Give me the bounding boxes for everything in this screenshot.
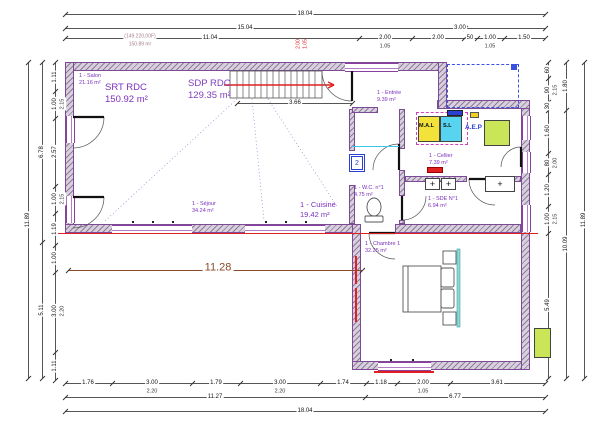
porch-dashed-outline xyxy=(447,64,519,108)
dimension-line xyxy=(42,62,43,378)
dim-label: 6.77 xyxy=(448,394,462,400)
dim-label: 1.00 xyxy=(52,192,58,206)
window-dot xyxy=(152,221,154,223)
dimension-tick xyxy=(543,36,549,42)
dim-label: 3.00 xyxy=(52,304,58,318)
dim-label: 11.28 xyxy=(203,263,234,274)
room-label-entree: 1 - Entrée 9.39 m² xyxy=(377,90,401,104)
dim-label: 5.11 xyxy=(39,303,45,316)
room-label-chambre: 1 - Chambre 1 32.25 m² xyxy=(365,241,400,255)
dim-label: 1.74 xyxy=(336,380,350,386)
dim-label: 6.78 xyxy=(39,145,45,159)
srt-value: 150.92 m² xyxy=(105,94,148,106)
room-label-wc: 1 - W.C. n°1 4.75 m² xyxy=(354,185,384,199)
room-label-cellier: 1 - Cellier 7.39 m² xyxy=(429,153,453,167)
srt-area-summary: SRT RDC 150.92 m² xyxy=(105,82,148,106)
wall xyxy=(438,62,447,109)
plumbing-line xyxy=(352,146,399,147)
dim-label: 2.00 xyxy=(297,38,302,50)
dimension-tick xyxy=(582,376,588,382)
dim-label: 150.89 m² xyxy=(128,43,153,48)
dim-label: 90 xyxy=(545,86,551,95)
dim-label: 2.00 xyxy=(553,157,559,170)
window-opening xyxy=(522,152,531,173)
dimension-tick xyxy=(40,376,46,382)
window-marker-red xyxy=(374,371,434,373)
dim-label: 2.20 xyxy=(274,389,287,395)
dim-label: 1.11 xyxy=(52,70,58,83)
plus-icon: + xyxy=(446,179,451,189)
dim-label: 1.05 xyxy=(304,38,309,50)
sink-unit: + xyxy=(441,178,456,190)
level-marker[interactable]: 2 xyxy=(351,156,363,170)
dryer-label: S.L xyxy=(443,123,452,129)
dimension-tick xyxy=(543,12,549,18)
dim-label: 11.27 xyxy=(207,394,224,400)
window-dot xyxy=(412,359,414,361)
dim-label: 2.15 xyxy=(60,98,66,111)
dim-label: 1.50 xyxy=(517,35,531,41)
window-opening xyxy=(345,63,398,72)
dim-label: 1.00 xyxy=(52,97,58,111)
dim-label: 15.04 xyxy=(236,25,253,31)
dimension-tick xyxy=(543,395,549,401)
dryer-box xyxy=(440,116,462,142)
dim-label: 2.15 xyxy=(553,84,559,97)
valve-box xyxy=(470,112,479,118)
floor-plan-canvas: + + + M.A.L S.L A.E.P 2 SRT RDC 150.92 m… xyxy=(0,0,600,426)
window-dot xyxy=(265,221,267,223)
dim-label: 2.20 xyxy=(60,305,66,318)
dim-label: 1.80 xyxy=(563,79,569,93)
dim-label: 3.00 xyxy=(273,380,287,386)
wall xyxy=(521,100,530,370)
dim-label: 3.66 xyxy=(288,100,302,106)
room-area: 32.25 m² xyxy=(365,248,400,255)
room-label-cuisine: 1 - Cuisine 19.42 m² xyxy=(300,200,336,220)
dim-label: 1.05 xyxy=(379,44,392,50)
srt-label: SRT RDC xyxy=(105,82,148,94)
dimension-tick xyxy=(53,378,59,384)
dimension-tick xyxy=(350,101,356,107)
window-dot xyxy=(305,221,307,223)
washer-label: M.A.L xyxy=(419,123,434,129)
dim-label: 3.61 xyxy=(490,380,504,386)
dimension-line xyxy=(65,383,545,384)
aep-label: A.E.P xyxy=(465,124,482,131)
sdp-label: SDP RDC xyxy=(188,78,231,90)
partition-wall xyxy=(399,109,405,149)
dim-label: 2.15 xyxy=(553,213,559,226)
room-name: 1 - SDE N°1 xyxy=(428,196,458,203)
room-area: 34.24 m² xyxy=(192,208,216,215)
room-area: 7.39 m² xyxy=(429,160,453,167)
dim-label: 2.20 xyxy=(146,389,159,395)
dim-label: 1.60 xyxy=(545,124,551,138)
dimension-tick xyxy=(543,409,549,415)
window-dot xyxy=(285,221,287,223)
dim-label: 50 xyxy=(466,35,475,41)
dim-label: 1.19 xyxy=(52,222,58,236)
dimension-tick xyxy=(26,376,32,382)
room-area: 21.16 m² xyxy=(79,80,101,87)
dim-label: 18.04 xyxy=(296,11,313,17)
sdp-value: 129.35 m² xyxy=(188,90,231,102)
dim-label: 11.04 xyxy=(202,35,219,41)
window-opening xyxy=(522,116,531,140)
sliding-door-marker xyxy=(355,256,357,284)
staircase xyxy=(224,71,334,98)
room-name: 1 - Séjour xyxy=(192,201,216,208)
dim-label: (149.220,00F) xyxy=(123,35,156,40)
dim-label: 10.09 xyxy=(563,235,569,252)
dim-label: 1.76 xyxy=(81,380,95,386)
dim-label: 1.18 xyxy=(374,380,388,386)
dim-label: 11.89 xyxy=(581,212,587,229)
sliding-door-marker xyxy=(355,288,357,322)
room-area: 9.39 m² xyxy=(377,97,401,104)
window-dot xyxy=(390,359,392,361)
dim-label: 80 xyxy=(545,159,551,168)
room-area: 6.94 m² xyxy=(428,203,458,210)
exterior-unit-box xyxy=(534,328,551,358)
room-name: 1 - Cuisine xyxy=(300,200,336,210)
room-label-sejour: 1 - Séjour 34.24 m² xyxy=(192,201,216,215)
dim-label: 60 xyxy=(545,66,551,75)
dim-label: 1.11 xyxy=(52,359,58,372)
wall xyxy=(395,224,521,233)
dim-label: 11.89 xyxy=(25,212,31,229)
room-name: 1 - Salon xyxy=(79,73,101,80)
dim-label: 1.05 xyxy=(484,44,497,50)
meter-box xyxy=(447,110,463,116)
dimension-tick xyxy=(543,381,549,387)
sdp-area-summary: SDP RDC 129.35 m² xyxy=(188,78,231,102)
dimension-tick xyxy=(543,26,549,32)
dim-label: 1.00 xyxy=(545,212,551,226)
dimension-line xyxy=(65,397,545,398)
dimension-line xyxy=(65,28,545,29)
dim-label: 1.00 xyxy=(483,35,497,41)
dim-label: 2.15 xyxy=(60,193,66,206)
shower-unit: + xyxy=(485,176,515,192)
room-name: 1 - Chambre 1 xyxy=(365,241,400,248)
dim-label: 18.04 xyxy=(296,408,313,414)
window-opening xyxy=(522,205,531,232)
plus-icon: + xyxy=(430,179,435,189)
window-dot xyxy=(132,221,134,223)
dim-label: 5.49 xyxy=(545,298,551,312)
dim-label: 1.00 xyxy=(52,251,58,265)
window-opening xyxy=(66,116,75,143)
dim-label: 3.00 xyxy=(453,25,467,31)
partition-wall xyxy=(352,107,378,113)
dim-label: 2.00 xyxy=(416,380,430,386)
room-label-salon: 1 - Salon 21.16 m² xyxy=(79,73,101,87)
room-area: 4.75 m² xyxy=(354,192,384,199)
dim-label: 2.00 xyxy=(378,35,392,41)
stair-handrail-line xyxy=(224,82,334,88)
dim-label: 3.00 xyxy=(145,380,159,386)
sink-unit: + xyxy=(425,178,440,190)
partition-wall xyxy=(349,109,355,151)
window-dot xyxy=(172,221,174,223)
toilet xyxy=(365,198,383,222)
window-opening xyxy=(66,196,75,223)
water-heater-box xyxy=(484,120,510,146)
porch-corner-post xyxy=(511,64,517,70)
plus-icon: + xyxy=(497,179,502,189)
room-label-sde: 1 - SDE N°1 6.94 m² xyxy=(428,196,458,210)
window-opening xyxy=(378,362,431,371)
radiator-box xyxy=(427,167,443,173)
dim-label: 1.05 xyxy=(417,389,430,395)
dim-label: 1.79 xyxy=(209,380,223,386)
washing-machine-box xyxy=(418,116,440,142)
partition-wall xyxy=(399,220,405,224)
dim-label: 2.57 xyxy=(52,145,58,159)
dim-label: 2.00 xyxy=(431,35,445,41)
room-name: 1 - W.C. n°1 xyxy=(354,185,384,192)
dimension-tick xyxy=(564,376,570,382)
room-name: 1 - Entrée xyxy=(377,90,401,97)
dimension-tick xyxy=(546,376,552,382)
room-name: 1 - Cellier xyxy=(429,153,453,160)
room-area: 19.42 m² xyxy=(300,210,336,220)
dim-label: 30 xyxy=(545,102,551,111)
section-line xyxy=(56,233,538,234)
dim-label: 1.20 xyxy=(545,183,551,197)
partition-wall xyxy=(399,170,405,196)
bed xyxy=(403,249,460,327)
